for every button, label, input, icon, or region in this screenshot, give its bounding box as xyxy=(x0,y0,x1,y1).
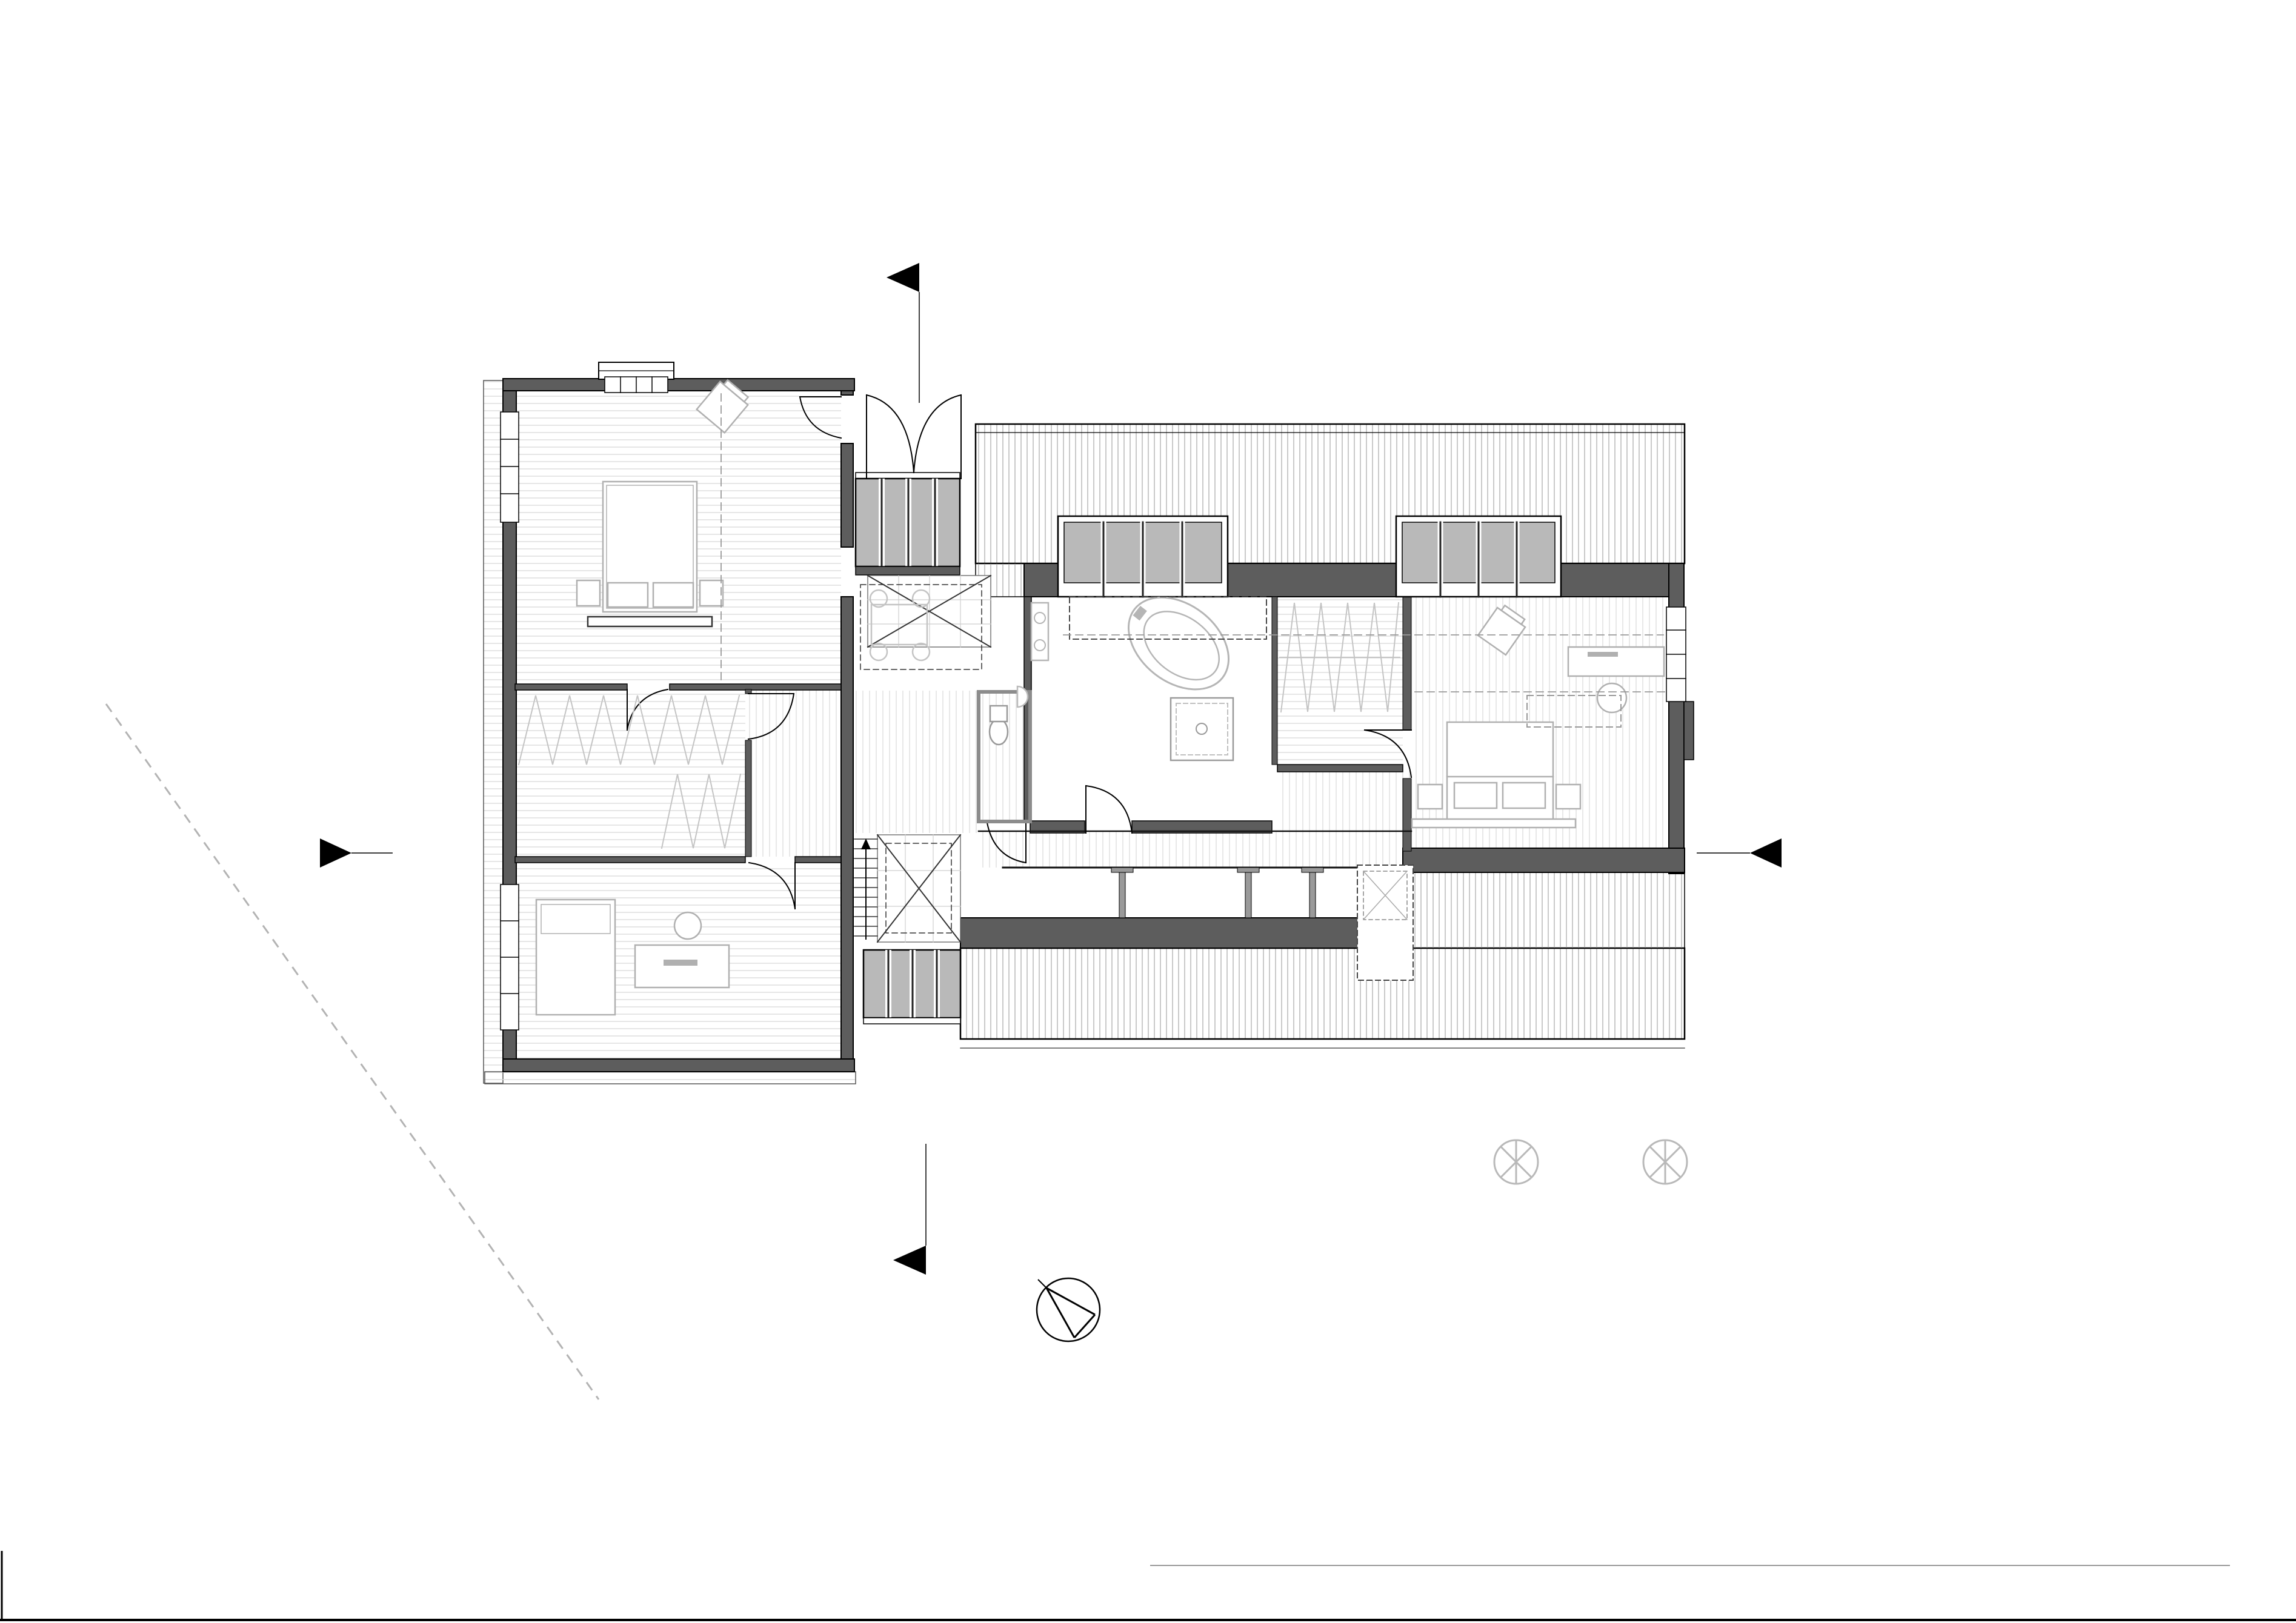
stair-arrow xyxy=(861,838,871,939)
window-east-sk2 xyxy=(1666,607,1686,702)
section-marker-right-a xyxy=(1697,838,1782,868)
window-north-sk1 xyxy=(599,362,674,393)
floor-plan-canvas xyxy=(0,0,2296,1623)
entry-double-doors xyxy=(867,395,961,479)
dormer-badkamer xyxy=(1058,516,1228,597)
vide-2 xyxy=(877,835,960,942)
dormer-sk2 xyxy=(1396,516,1561,597)
dormer-stairwell xyxy=(863,950,960,1024)
drawing-sheet xyxy=(0,0,2296,1623)
vide-1 xyxy=(860,576,991,669)
dormer-entry xyxy=(856,473,960,575)
floor-plan xyxy=(484,362,1694,1084)
sheet-border xyxy=(0,1551,2296,1620)
chimney-vent xyxy=(1357,865,1413,980)
section-marker-bottom-b xyxy=(893,1144,926,1275)
room-overloop-floor xyxy=(853,691,979,833)
window-west-sk1 xyxy=(501,412,519,522)
north-arrow-icon xyxy=(1037,1278,1100,1341)
section-marker-left-a xyxy=(320,838,393,868)
washbasin xyxy=(1031,603,1048,660)
roof-vent-symbols xyxy=(1494,1140,1687,1184)
shower xyxy=(1171,698,1233,760)
section-marker-top-b xyxy=(887,263,919,403)
bathtub xyxy=(1111,579,1246,708)
room-inloopkast-floor xyxy=(515,689,745,857)
window-west-logeerkamer xyxy=(501,885,519,1030)
